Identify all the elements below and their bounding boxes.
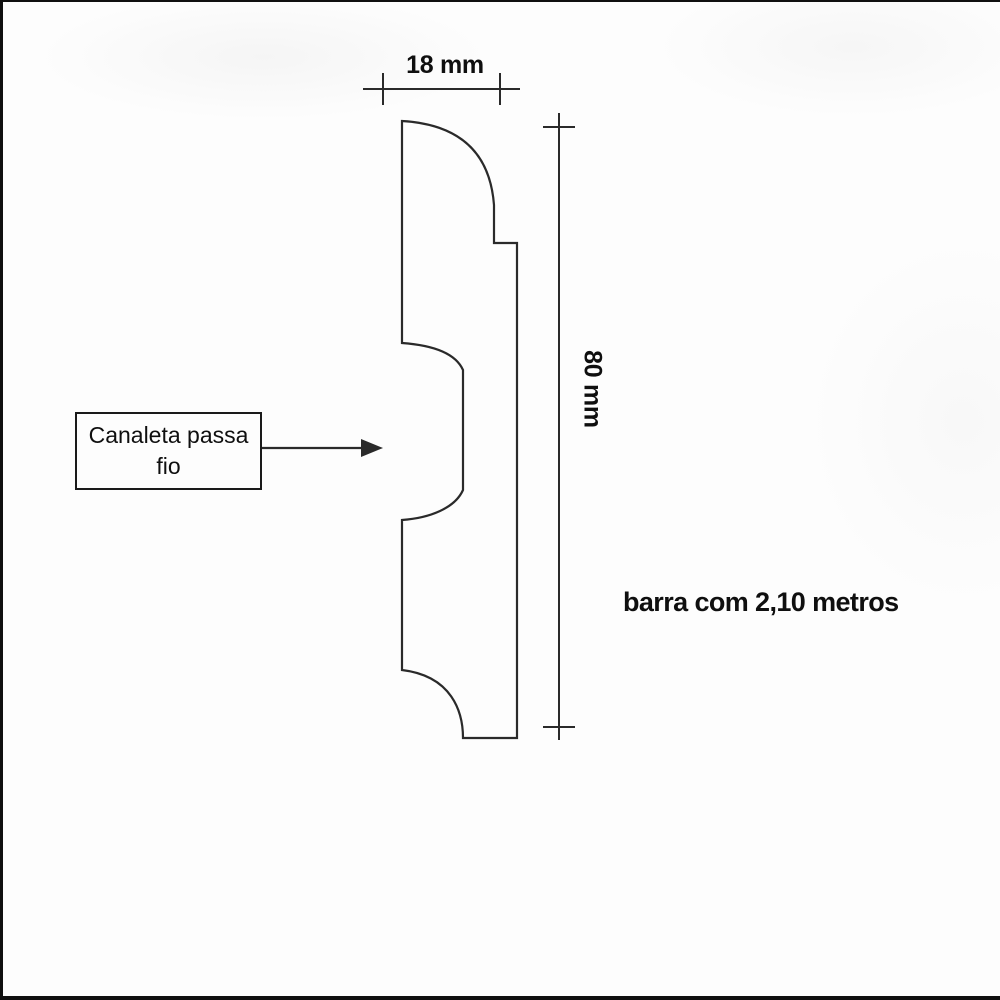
drawing-lines: [259, 73, 575, 740]
profile-drawing: [0, 0, 1000, 1000]
length-note: barra com 2,10 metros: [623, 587, 899, 618]
callout-box: Canaleta passa fio: [75, 412, 262, 490]
width-dimension-label: 18 mm: [365, 51, 525, 80]
skirting-profile-outline: [402, 121, 517, 738]
height-dimension-label: 80 mm: [578, 350, 607, 428]
height-dimension-lines: [543, 113, 575, 740]
diagram-canvas: 18 mm 80 mm Canaleta passa fio barra com…: [0, 0, 1000, 1000]
arrow-right-icon: [361, 439, 383, 457]
callout-label-line1: Canaleta passa: [89, 420, 249, 451]
callout-label-line2: fio: [156, 451, 180, 482]
callout-arrow: [259, 439, 383, 457]
